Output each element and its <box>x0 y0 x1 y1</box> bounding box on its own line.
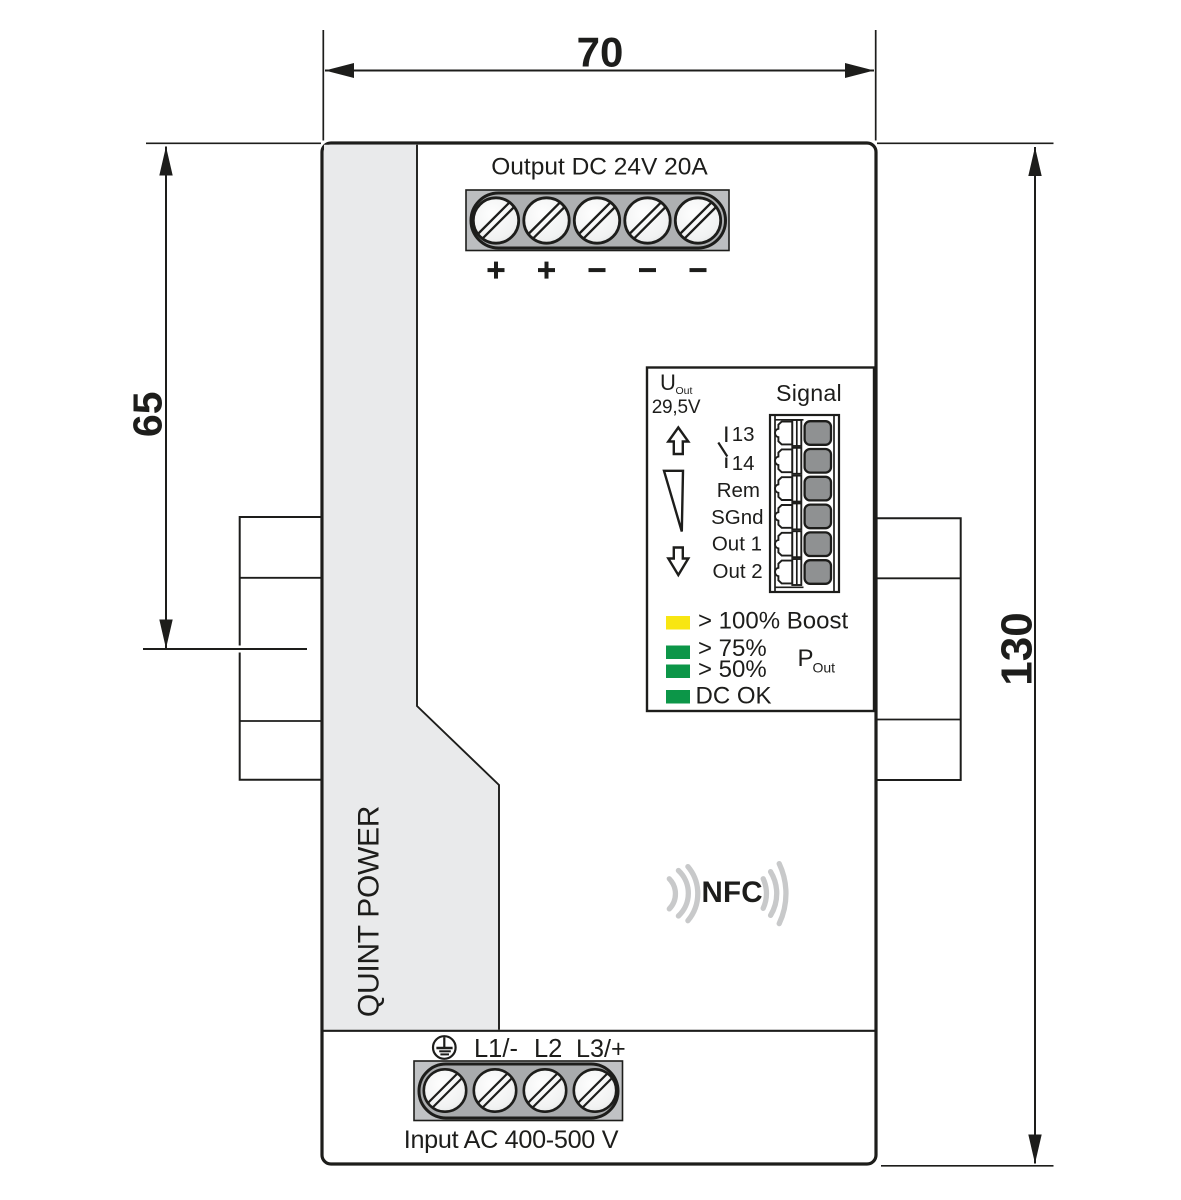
svg-text:L2: L2 <box>534 1035 562 1063</box>
svg-text:Out: Out <box>813 659 836 675</box>
svg-text:Output DC 24V 20A: Output DC 24V 20A <box>491 154 708 181</box>
svg-text:130: 130 <box>993 612 1042 685</box>
svg-text:Input AC 400-500 V: Input AC 400-500 V <box>404 1126 619 1154</box>
svg-text:Out 1: Out 1 <box>712 533 762 556</box>
svg-text:> 100% Boost: > 100% Boost <box>698 608 848 635</box>
svg-text:13: 13 <box>732 423 755 446</box>
svg-text:65: 65 <box>125 391 171 437</box>
svg-text:NFC: NFC <box>702 876 763 909</box>
svg-text:U: U <box>660 370 676 395</box>
svg-text:70: 70 <box>577 29 624 76</box>
svg-text:Out: Out <box>676 385 693 397</box>
svg-text:DC OK: DC OK <box>696 683 772 710</box>
svg-text:QUINT POWER: QUINT POWER <box>353 806 386 1017</box>
svg-text:L1/-: L1/- <box>474 1035 518 1063</box>
svg-text:Signal: Signal <box>776 380 842 406</box>
svg-text:L3/+: L3/+ <box>576 1035 626 1063</box>
svg-text:P: P <box>798 645 814 672</box>
svg-text:> 50%: > 50% <box>698 656 767 683</box>
svg-text:SGnd: SGnd <box>711 506 763 529</box>
svg-text:29,5V: 29,5V <box>652 397 701 418</box>
svg-text:14: 14 <box>732 452 755 475</box>
svg-text:Rem: Rem <box>717 479 760 502</box>
svg-text:Out 2: Out 2 <box>713 560 763 583</box>
